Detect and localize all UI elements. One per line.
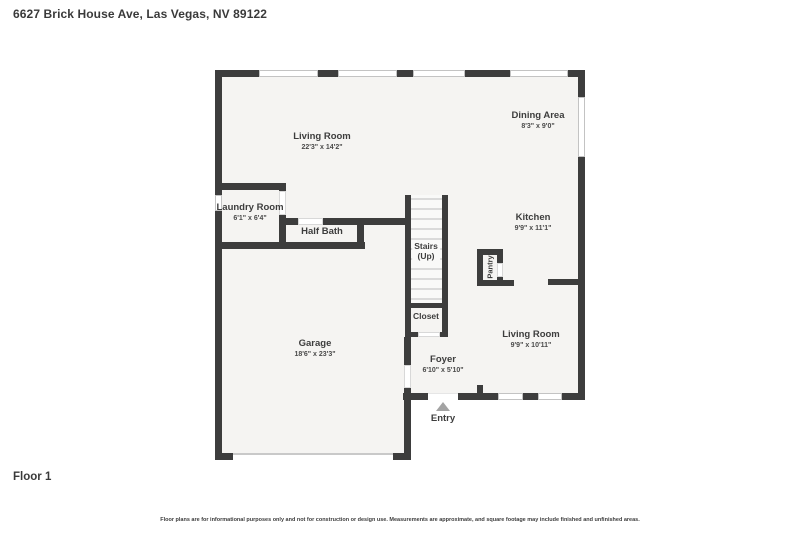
entry-arrow-icon [436,402,450,411]
stairs-direction: (Up) [412,252,440,262]
room-name: Closet [413,312,439,322]
room-label-garage: Garage 18'6" x 23'3" [294,339,335,359]
room-label-living-room-main: Living Room 22'3" x 14'2" [293,132,351,152]
floor-number-label: Floor 1 [13,471,51,483]
room-name: Garage [294,339,335,350]
stair-tread [411,298,442,300]
room-dims: 22'3" x 14'2" [293,144,351,152]
wall-pantry-right-upper [497,249,503,263]
stair-tread [411,208,442,210]
room-name: Foyer [422,355,463,366]
room-dims: 9'9" x 11'1" [515,225,552,233]
wall-garage-foyer-divider [404,337,411,460]
front-door-opening [428,393,458,400]
room-label-dining-area: Dining Area 8'3" x 9'0" [512,111,565,131]
window-bottom-2 [538,393,562,400]
room-name: Kitchen [515,213,552,224]
stair-tread [411,278,442,280]
room-name: Half Bath [301,227,343,238]
room-name: Dining Area [512,111,565,122]
floor-area-garage [215,70,410,460]
room-name: Entry [431,414,455,425]
room-dims: 9'9" x 10'11" [502,342,560,350]
window-right-dining [578,97,585,157]
wall-halfbath-right [357,218,364,249]
door-closet [418,332,440,337]
room-label-living-room-lower: Living Room 9'9" x 10'11" [502,330,560,350]
stair-tread [411,218,442,220]
door-pantry [497,263,503,277]
room-dims: 6'1" x 6'4" [216,215,283,223]
stair-tread [411,268,442,270]
window-top-2 [338,70,397,77]
room-name: Living Room [502,330,560,341]
stair-tread [411,198,442,200]
room-dims: 6'10" x 5'10" [422,367,463,375]
garage-door [233,453,393,460]
window-top-1 [259,70,318,77]
window-top-3 [413,70,465,77]
page: 6627 Brick House Ave, Las Vegas, NV 8912… [0,0,800,533]
wall-kitchen-living-divider [548,279,578,285]
room-name: Laundry Room [216,203,283,214]
wall-laundry-top [215,183,285,190]
floor-plan: Living Room 22'3" x 14'2" Dining Area 8'… [0,0,800,533]
room-name: Living Room [293,132,351,143]
door-garage-foyer [404,365,411,388]
room-dims: 18'6" x 23'3" [294,351,335,359]
room-label-foyer: Foyer 6'10" x 5'10" [422,355,463,375]
stair-tread [411,228,442,230]
disclaimer-text: Floor plans are for informational purpos… [0,517,800,523]
stair-tread [411,288,442,290]
room-label-entry: Entry [431,414,455,425]
room-label-laundry-room: Laundry Room 6'1" x 6'4" [216,203,283,223]
wall-laundry-halfbath-bottom [215,242,365,249]
room-label-kitchen: Kitchen 9'9" x 11'1" [515,213,552,233]
room-label-closet: Closet [413,312,439,322]
door-half-bath [298,218,323,225]
wall-pantry-bottom [477,280,514,286]
room-label-pantry: Pantry [486,255,495,278]
wall-left [215,70,222,460]
room-label-stairs: Stairs (Up) [412,242,440,262]
stair-tread [411,238,442,240]
window-top-4 [510,70,568,77]
wall-stairs-left [405,195,411,308]
wall-foyer-stub [477,385,483,400]
wall-stairs-right [442,195,448,308]
room-dims: 8'3" x 9'0" [512,123,565,131]
window-bottom-1 [498,393,523,400]
room-label-half-bath: Half Bath [301,227,343,238]
